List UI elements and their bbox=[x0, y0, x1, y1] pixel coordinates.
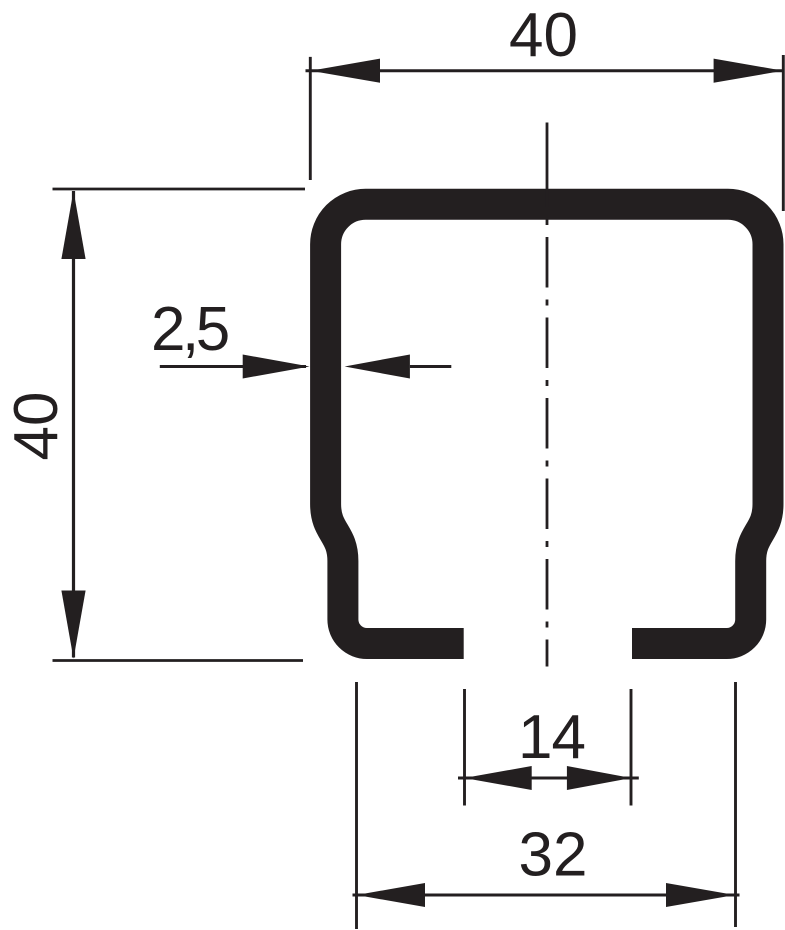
svg-text:14: 14 bbox=[518, 703, 585, 772]
svg-text:2,5: 2,5 bbox=[151, 295, 228, 364]
svg-text:40: 40 bbox=[2, 392, 71, 461]
svg-text:40: 40 bbox=[509, 1, 578, 70]
svg-text:32: 32 bbox=[519, 821, 588, 890]
